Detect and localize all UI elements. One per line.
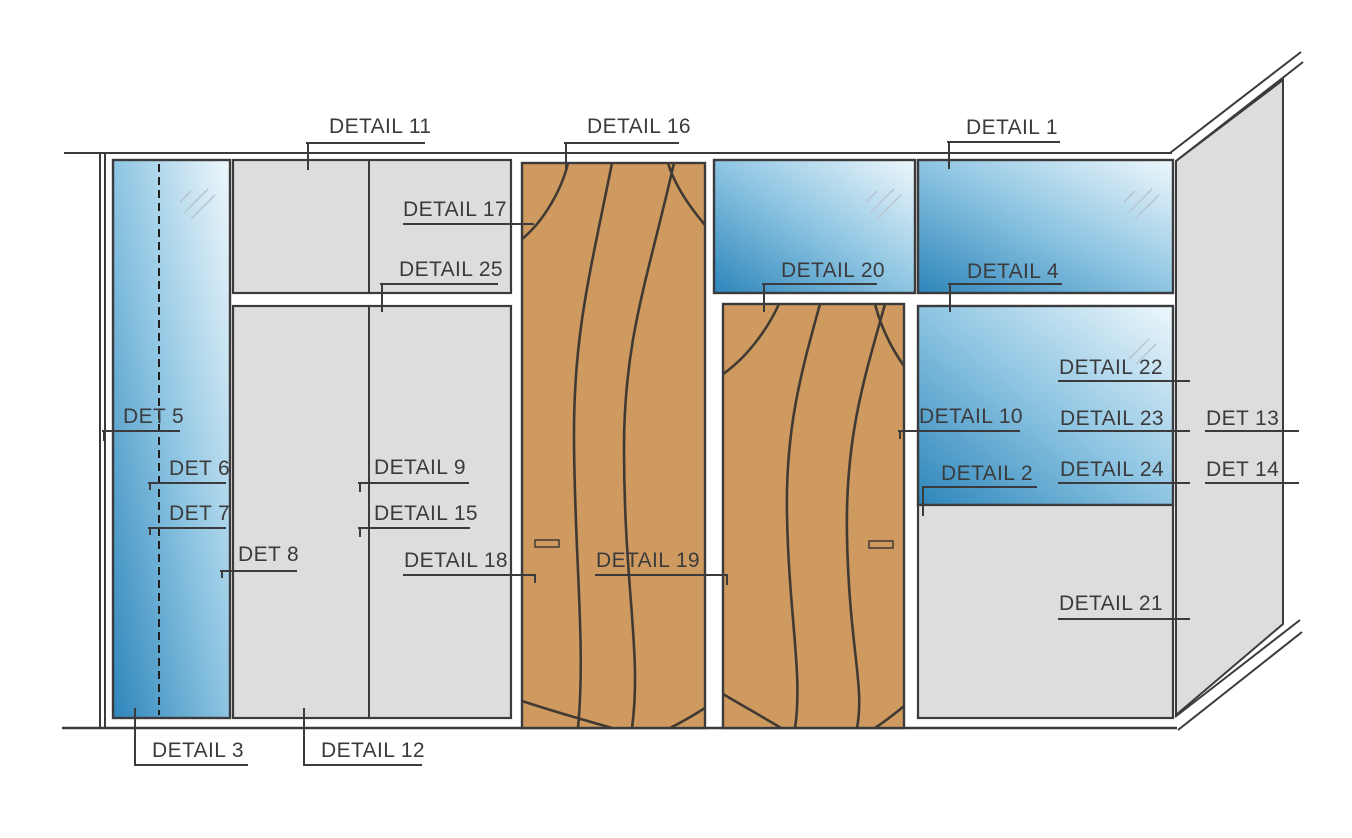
leader-line	[380, 283, 498, 285]
leader-line	[762, 283, 877, 285]
leader-line	[595, 574, 727, 576]
label-detail-15: DETAIL 15	[374, 503, 478, 524]
label-detail-10: DETAIL 10	[919, 406, 1023, 427]
leader-line	[303, 764, 422, 766]
leader-line	[359, 527, 361, 537]
leader-line	[148, 482, 226, 484]
label-detail-3: DETAIL 3	[152, 740, 244, 761]
label-detail-17: DETAIL 17	[403, 199, 507, 220]
leader-line	[220, 570, 297, 572]
label-detail-21: DETAIL 21	[1059, 593, 1163, 614]
leader-line	[899, 430, 901, 439]
leader-line	[898, 430, 1020, 432]
leader-line	[947, 141, 1060, 143]
leader-line	[103, 430, 105, 441]
leader-line	[1058, 380, 1190, 382]
label-det-8: DET 8	[238, 544, 299, 565]
label-detail-2: DETAIL 2	[941, 463, 1033, 484]
leader-line	[564, 142, 679, 144]
leader-line	[307, 142, 309, 170]
leader-line	[221, 570, 223, 578]
leader-line	[149, 482, 151, 490]
label-detail-9: DETAIL 9	[374, 457, 466, 478]
leader-line	[948, 283, 1062, 285]
leader-line	[565, 142, 567, 170]
glass-panel-left	[113, 160, 230, 718]
return-wall	[1176, 80, 1283, 715]
leader-line	[922, 486, 924, 516]
leader-line	[134, 764, 248, 766]
leader-line	[1205, 430, 1299, 432]
label-detail-19: DETAIL 19	[596, 550, 700, 571]
leader-line	[1205, 482, 1299, 484]
leader-line	[381, 283, 383, 312]
label-detail-18: DETAIL 18	[404, 550, 508, 571]
leader-line	[303, 708, 305, 764]
label-detail-20: DETAIL 20	[781, 260, 885, 281]
leader-line	[1058, 482, 1190, 484]
leader-line	[134, 708, 136, 764]
leader-line	[358, 527, 470, 529]
label-detail-25: DETAIL 25	[399, 259, 503, 280]
leader-line	[306, 142, 425, 144]
door-1-leaf	[522, 163, 705, 728]
leader-line	[949, 283, 951, 312]
label-det-5: DET 5	[123, 406, 184, 427]
label-det-7: DET 7	[169, 503, 230, 524]
leader-line	[148, 527, 226, 529]
leader-line	[948, 141, 950, 169]
leader-line	[149, 527, 151, 535]
wood-door-1	[522, 163, 705, 728]
leader-line	[359, 482, 361, 492]
label-detail-23: DETAIL 23	[1060, 408, 1164, 429]
door-2-leaf	[723, 304, 904, 728]
leader-line	[534, 574, 536, 583]
label-detail-11: DETAIL 11	[329, 116, 431, 137]
wood-door-2	[723, 304, 904, 728]
label-detail-1: DETAIL 1	[966, 117, 1058, 138]
leader-line	[1058, 430, 1190, 432]
label-detail-4: DETAIL 4	[967, 261, 1059, 282]
leader-line	[403, 223, 534, 225]
leader-line	[403, 574, 535, 576]
label-det-14: DET 14	[1206, 459, 1279, 480]
leader-line	[763, 283, 765, 312]
elevation-drawing: DETAIL 11DETAIL 16DETAIL 1DETAIL 17DETAI…	[0, 0, 1352, 838]
leader-line	[1058, 618, 1190, 620]
leader-line	[922, 486, 1037, 488]
label-det-6: DET 6	[169, 458, 230, 479]
label-detail-24: DETAIL 24	[1060, 459, 1164, 480]
label-det-13: DET 13	[1206, 408, 1279, 429]
label-detail-16: DETAIL 16	[587, 116, 691, 137]
label-detail-12: DETAIL 12	[321, 740, 425, 761]
leader-line	[726, 574, 728, 585]
leader-line	[358, 482, 469, 484]
leader-line	[102, 430, 180, 432]
label-detail-22: DETAIL 22	[1059, 357, 1163, 378]
